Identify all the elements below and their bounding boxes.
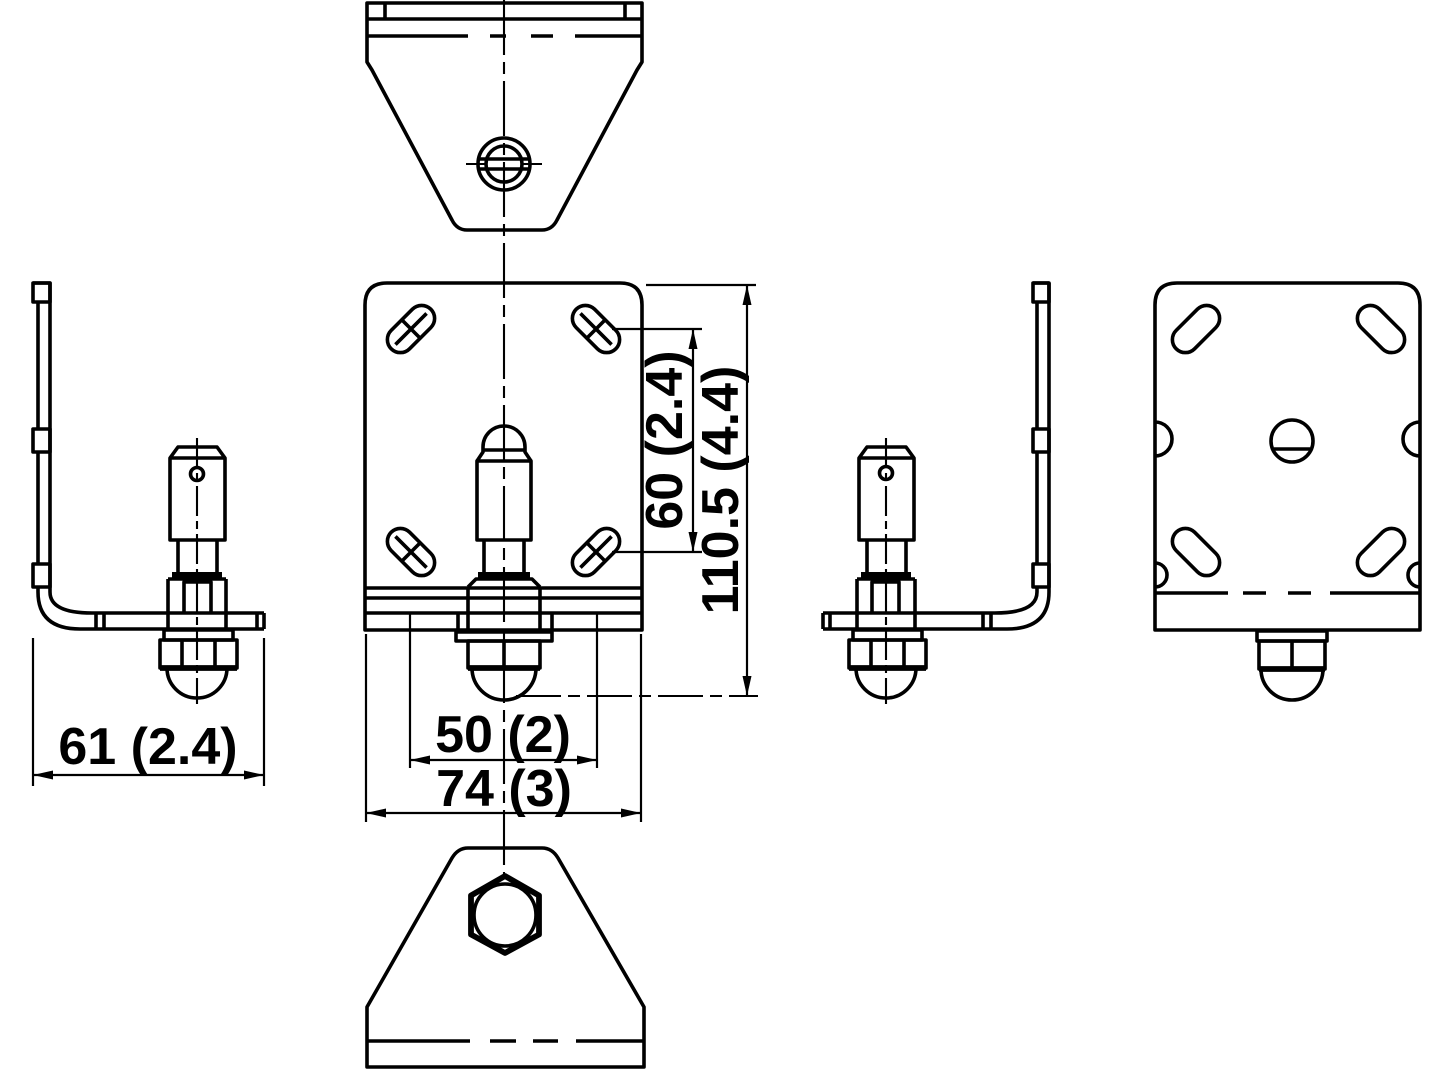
front-slot-top-left — [382, 300, 440, 358]
right-side-view — [823, 283, 1049, 704]
hex-nut-facets-side — [182, 640, 215, 668]
rear-left-edge-cutouts — [1155, 422, 1172, 587]
arrowhead-left-icon — [366, 809, 386, 818]
rear-slot-bottom-right — [1352, 523, 1410, 581]
ball-end-rear — [1261, 669, 1323, 700]
dimension-label-60: 60 (2.4) — [636, 350, 694, 529]
hex-nut-side2 — [849, 640, 926, 668]
rear-view — [1155, 283, 1420, 700]
ball-circle-bottom-view — [474, 884, 536, 946]
arrowhead-right-icon — [621, 809, 641, 818]
arrowhead-right-icon — [577, 756, 597, 765]
left-bend-curves — [38, 592, 92, 629]
dimension-label-50: 50 (2) — [435, 706, 571, 764]
dimension-bracket-depth: 61 (2.4) — [33, 638, 264, 786]
left-plate-tab-top — [33, 283, 50, 302]
arrowhead-up-icon — [743, 285, 752, 305]
left-plate-tab-middle — [33, 429, 50, 452]
dimension-label-110: 110.5 (4.4) — [692, 366, 750, 615]
front-slot-bottom-left — [382, 523, 440, 581]
right-bend-curves — [995, 592, 1049, 629]
left-plate-right-face — [33, 283, 50, 592]
arrowhead-up-icon — [689, 329, 698, 349]
dimension-slot-spacing-vertical: 60 (2.4) — [612, 329, 702, 552]
dimension-label-74: 74 (3) — [436, 760, 572, 818]
rear-slot-top-right — [1352, 300, 1410, 358]
rear-right-edge-cutouts — [1403, 422, 1420, 587]
technical-drawing: 61 (2.4) 50 (2) 74 (3) 60 (2.4) — [0, 0, 1434, 1080]
dimension-label-61: 61 (2.4) — [58, 718, 237, 776]
left-side-view — [33, 283, 264, 704]
arrowhead-left-icon — [33, 771, 53, 780]
arrowhead-down-icon — [743, 676, 752, 696]
rear-slot-bottom-left — [1167, 523, 1225, 581]
left-plate-tab-bottom — [33, 564, 50, 587]
rear-plate-outline — [1155, 283, 1420, 630]
right-ball-stud — [849, 438, 926, 704]
left-ball-stud — [160, 438, 237, 704]
right-plate-tab-bottom — [1033, 564, 1049, 587]
left-flange — [80, 613, 264, 629]
right-plate-tab-middle — [1033, 429, 1049, 452]
rear-slot-top-left — [1167, 300, 1225, 358]
hex-nut-bottom-view — [471, 876, 539, 953]
arrowhead-left-icon — [410, 756, 430, 765]
rear-screw-head-circle — [1271, 420, 1313, 462]
right-plate-tab-top — [1033, 283, 1049, 302]
bottom-view — [367, 848, 644, 1067]
bottom-view-outline — [367, 848, 644, 1067]
arrowhead-right-icon — [244, 771, 264, 780]
hex-nut-side — [160, 640, 237, 668]
hex-nut-facets-side2 — [871, 640, 904, 668]
bracket-drawing-svg: 61 (2.4) 50 (2) 74 (3) 60 (2.4) — [0, 0, 1434, 1080]
